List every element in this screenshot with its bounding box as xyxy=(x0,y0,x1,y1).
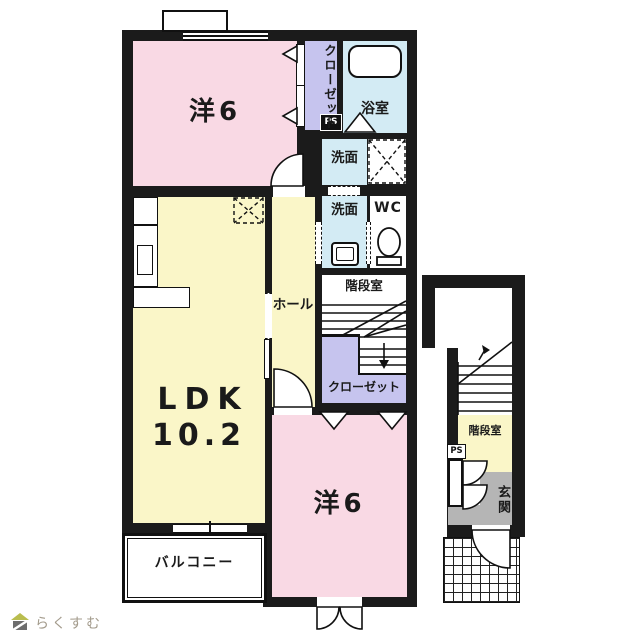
label-hall: ホール xyxy=(266,298,320,313)
kitchen-counter-bottom xyxy=(133,287,190,308)
bay-window xyxy=(162,10,228,32)
label-ldk-line1: LDK xyxy=(133,383,265,416)
washing-machine-space xyxy=(368,139,406,184)
door-opening-terrace xyxy=(317,597,362,607)
closet-mid-wall-ext-top xyxy=(358,373,406,375)
sink-basin xyxy=(336,247,354,261)
label-bedroom-top: 洋6 xyxy=(133,98,297,127)
closet-mid-wall-right xyxy=(358,334,360,375)
logo-text: らくすむ xyxy=(35,613,103,633)
kitchen-stove xyxy=(137,245,153,275)
label-balcony: バルコニー xyxy=(122,556,267,571)
label-ldk-line2: 10.2 xyxy=(133,419,265,452)
kitchen-counter-top xyxy=(133,197,158,225)
window-sash-line xyxy=(183,35,268,37)
label-stairwell-annex: 階段室 xyxy=(456,425,514,437)
closet-door-divider xyxy=(296,85,305,86)
label-wc: WC xyxy=(370,201,406,216)
house-icon xyxy=(10,612,30,631)
label-closet-top: クローゼット xyxy=(307,44,337,128)
door-arc-terrace-left xyxy=(317,607,339,629)
label-bathroom: 浴室 xyxy=(343,102,407,117)
porch-hatch xyxy=(443,537,520,603)
label-washroom-lower: 洗面 xyxy=(322,203,367,218)
sliding-door-washroom-lower xyxy=(315,222,322,264)
bathtub-icon xyxy=(348,45,402,78)
ps-annex-label: PS xyxy=(450,446,462,456)
sliding-door-wc xyxy=(366,222,371,264)
label-entrance: 玄関 xyxy=(484,476,510,524)
ps-shaft-annex: PS xyxy=(447,444,466,459)
door-opening-bedroom-top xyxy=(273,186,305,197)
sliding-door-panel-ldk xyxy=(264,339,270,379)
closet-mid-wall-top xyxy=(322,334,360,337)
label-stairwell-main: 階段室 xyxy=(322,279,406,293)
door-opening-entrance xyxy=(472,525,510,537)
label-bedroom-bottom: 洋6 xyxy=(272,490,407,519)
door-arc-terrace-right xyxy=(340,607,362,629)
label-closet-mid: クローゼット xyxy=(322,381,406,394)
label-washroom-upper: 洗面 xyxy=(322,151,367,166)
shoe-cabinet xyxy=(448,459,463,507)
sliding-door-washroom xyxy=(328,186,360,196)
floorplan-canvas: PS PS xyxy=(0,0,640,640)
door-opening-bedroom-bottom xyxy=(274,407,312,415)
stairs-annex-icon xyxy=(435,288,512,415)
toilet-icon xyxy=(374,224,404,268)
